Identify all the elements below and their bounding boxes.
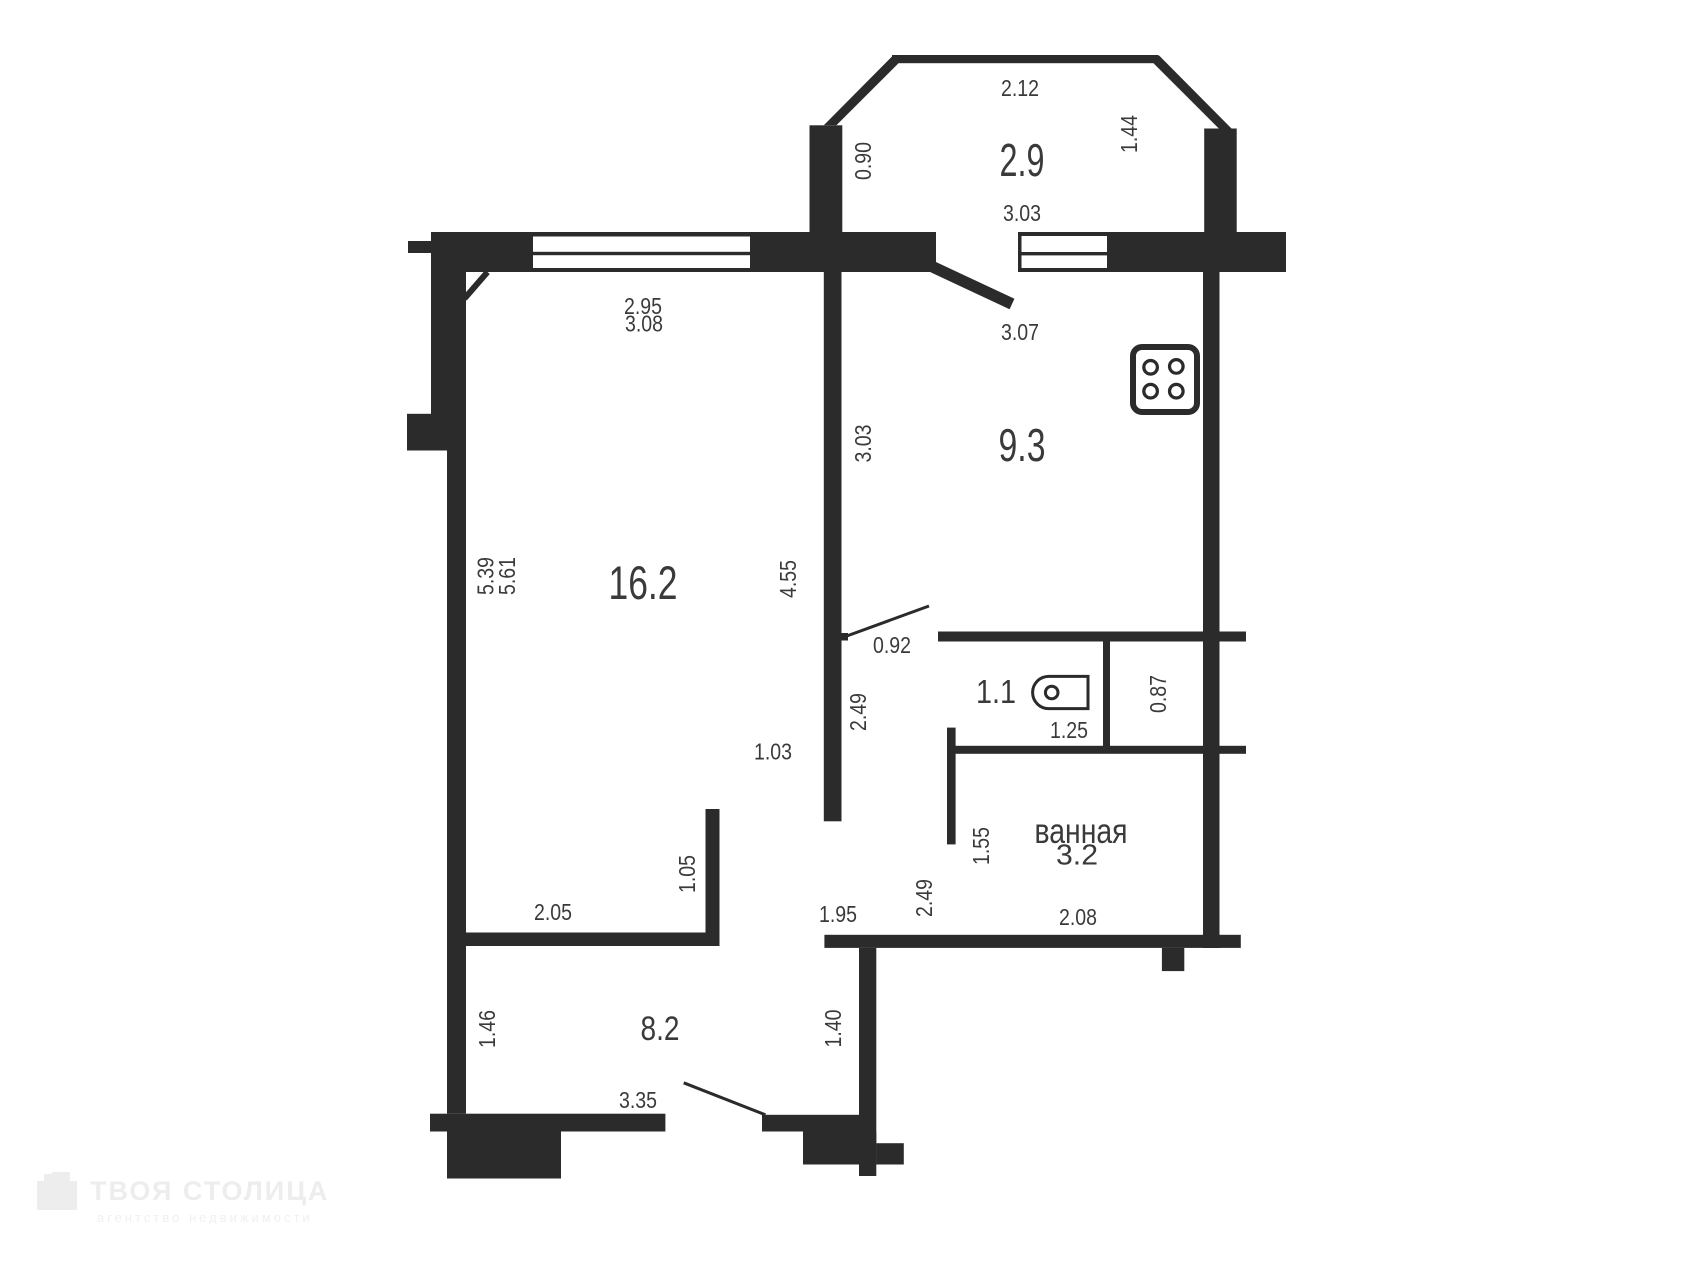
svg-text:ТВОЯ СТОЛИЦА: ТВОЯ СТОЛИЦА xyxy=(90,1176,329,1206)
svg-text:3.07: 3.07 xyxy=(1001,319,1039,345)
svg-text:9.3: 9.3 xyxy=(999,419,1046,471)
svg-text:2.49: 2.49 xyxy=(845,693,871,731)
svg-text:1.03: 1.03 xyxy=(754,739,792,765)
svg-text:3.03: 3.03 xyxy=(850,425,876,463)
svg-text:2.05: 2.05 xyxy=(534,899,572,925)
svg-text:0.90: 0.90 xyxy=(850,142,876,180)
svg-text:0.87: 0.87 xyxy=(1145,675,1171,713)
svg-text:2.08: 2.08 xyxy=(1059,904,1097,930)
svg-text:2.9: 2.9 xyxy=(1000,134,1045,186)
svg-text:1.95: 1.95 xyxy=(819,901,857,927)
svg-text:16.2: 16.2 xyxy=(609,556,678,609)
svg-text:8.2: 8.2 xyxy=(641,1010,680,1048)
svg-text:1.40: 1.40 xyxy=(820,1010,846,1048)
svg-text:1.55: 1.55 xyxy=(968,827,994,865)
svg-text:1.1: 1.1 xyxy=(976,673,1016,710)
svg-text:5.61: 5.61 xyxy=(494,557,520,595)
svg-text:2.49: 2.49 xyxy=(911,879,937,917)
svg-text:агентство недвижимости: агентство недвижимости xyxy=(97,1210,313,1225)
svg-text:3.08: 3.08 xyxy=(625,311,663,337)
svg-text:3.03: 3.03 xyxy=(1003,200,1041,226)
svg-text:3.35: 3.35 xyxy=(619,1087,657,1113)
svg-text:3.2: 3.2 xyxy=(1056,840,1098,872)
svg-text:1.46: 1.46 xyxy=(474,1010,500,1048)
svg-text:4.55: 4.55 xyxy=(775,560,801,598)
svg-text:1.05: 1.05 xyxy=(674,855,700,893)
svg-text:1.25: 1.25 xyxy=(1050,717,1088,743)
svg-text:1.44: 1.44 xyxy=(1116,115,1142,153)
svg-text:2.12: 2.12 xyxy=(1001,75,1039,101)
svg-text:0.92: 0.92 xyxy=(873,632,911,658)
